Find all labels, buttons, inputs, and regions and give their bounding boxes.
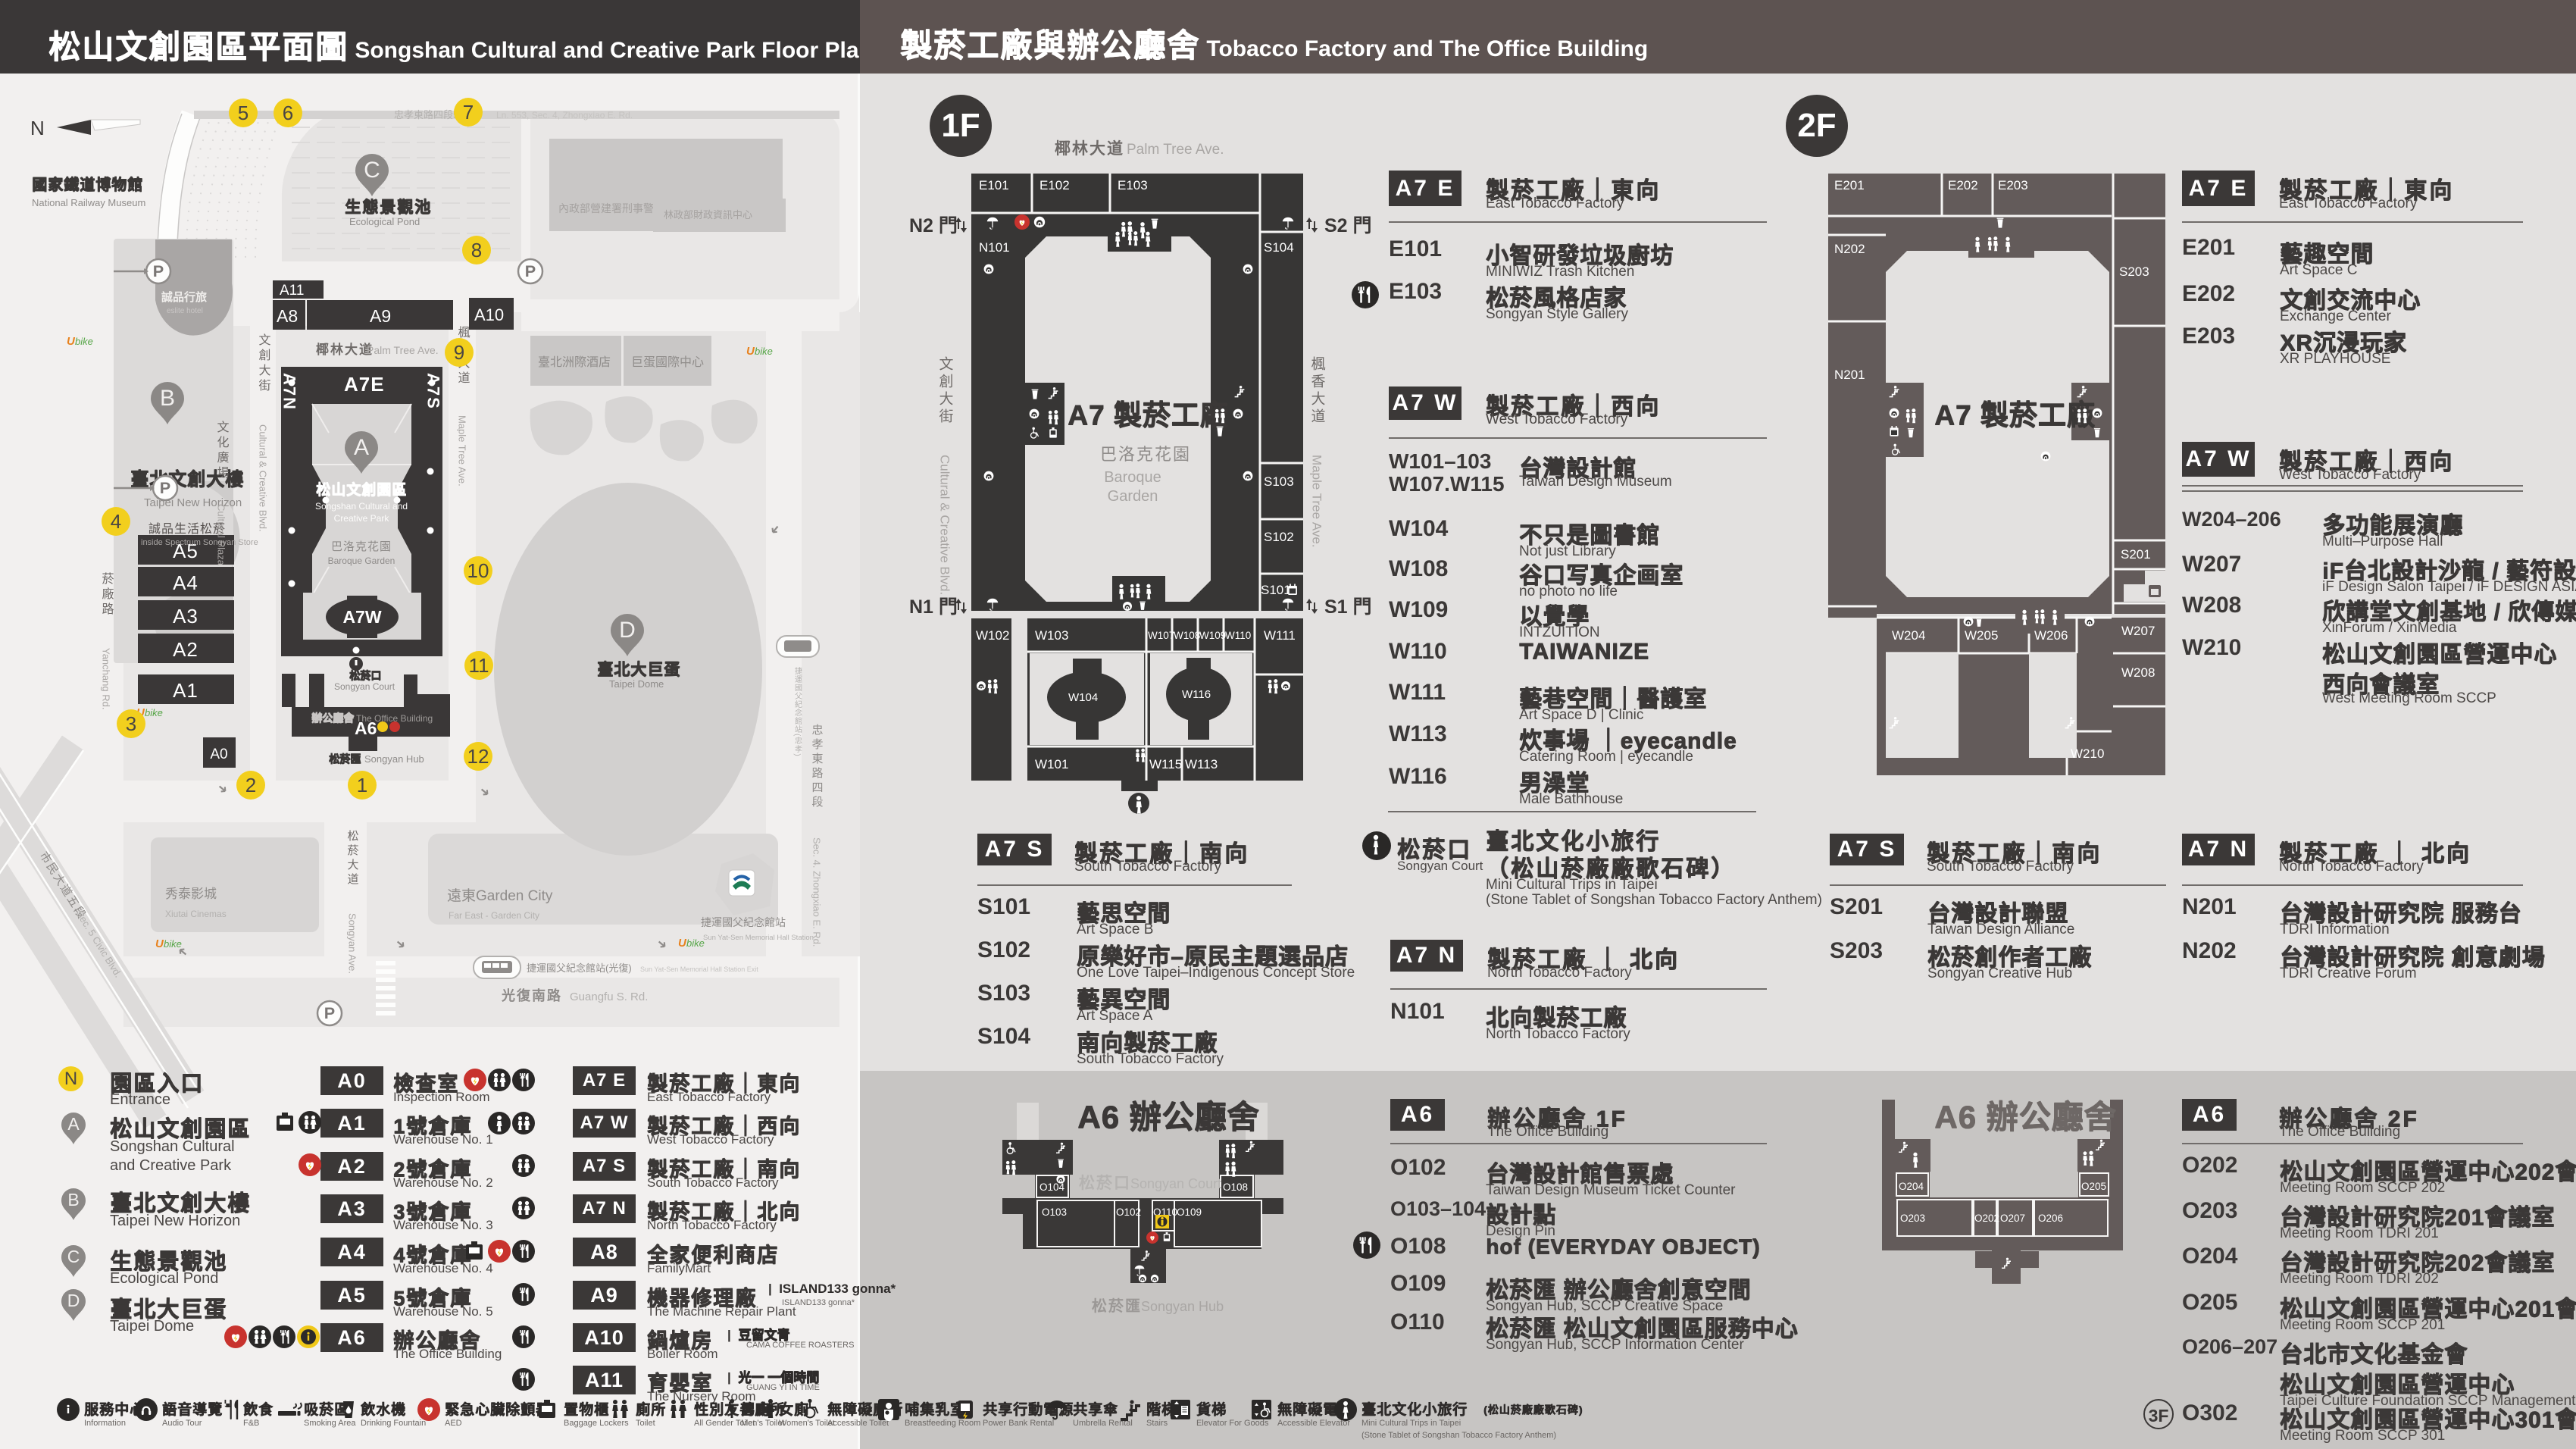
svg-text:W207: W207	[2121, 624, 2155, 638]
svg-text:誠品生活松菸: 誠品生活松菸	[148, 522, 226, 536]
svg-text:巴洛克花園: 巴洛克花園	[331, 540, 392, 553]
svg-text:W104: W104	[1068, 691, 1098, 704]
svg-text:光復南路: 光復南路	[501, 987, 562, 1003]
svg-text:E201: E201	[1834, 178, 1865, 192]
svg-text:Guangfu S. Rd.: Guangfu S. Rd.	[570, 991, 648, 1003]
svg-text:bike: bike	[145, 707, 163, 718]
svg-text:A2: A2	[173, 638, 199, 661]
svg-text:A8: A8	[277, 306, 298, 326]
svg-text:eslite hotel: eslite hotel	[167, 307, 203, 315]
svg-text:文創大街: 文創大街	[937, 356, 954, 426]
svg-text:Taipei Dome: Taipei Dome	[609, 678, 664, 690]
svg-text:bike: bike	[164, 938, 182, 950]
svg-text:W109: W109	[1199, 630, 1226, 641]
svg-text:捷運國父紀念館站: 捷運國父紀念館站	[701, 916, 786, 928]
svg-text:W208: W208	[2121, 665, 2155, 680]
svg-text:A1: A1	[173, 679, 199, 702]
svg-text:松菸大道: 松菸大道	[346, 830, 359, 887]
svg-text:Cultural & Creative Blvd.: Cultural & Creative Blvd.	[938, 455, 952, 595]
svg-text:Songshan Cultural and: Songshan Cultural and	[315, 501, 408, 512]
svg-text:Ecological Pond: Ecological Pond	[349, 216, 420, 227]
svg-text:S104: S104	[1264, 240, 1294, 255]
svg-text:S102: S102	[1264, 530, 1294, 544]
svg-text:N202: N202	[1834, 242, 1865, 256]
svg-text:O102: O102	[1116, 1206, 1141, 1218]
svg-text:P: P	[153, 261, 164, 280]
svg-text:P: P	[324, 1003, 335, 1022]
svg-text:O109: O109	[1177, 1206, 1202, 1218]
svg-text:捷運國父紀念館站(忠孝): 捷運國父紀念館站(忠孝)	[793, 666, 802, 757]
svg-text:Songyan Court: Songyan Court	[334, 681, 395, 692]
svg-text:辦公廳舍: 辦公廳舍	[311, 712, 355, 724]
svg-text:捷運國父紀念館站(光復): 捷運國父紀念館站(光復)	[527, 962, 632, 974]
svg-text:O205: O205	[2081, 1181, 2106, 1192]
svg-text:W210: W210	[2071, 746, 2104, 761]
svg-text:生態景觀池: 生態景觀池	[345, 198, 432, 216]
svg-text:Songyan Hub: Songyan Hub	[364, 753, 424, 765]
svg-text:B: B	[160, 386, 175, 411]
svg-text:O202: O202	[1974, 1213, 1999, 1224]
svg-text:忠孝東路四段: 忠孝東路四段	[811, 724, 824, 810]
svg-text:10: 10	[467, 559, 489, 582]
svg-text:A7S: A7S	[424, 373, 443, 410]
svg-text:Garden: Garden	[1108, 488, 1158, 505]
svg-text:O207: O207	[2000, 1213, 2025, 1224]
svg-text:O203: O203	[1900, 1213, 1925, 1224]
svg-text:國家鐵道博物館: 國家鐵道博物館	[32, 175, 143, 193]
svg-text:Far East - Garden City: Far East - Garden City	[449, 910, 539, 921]
svg-text:National Railway Museum: National Railway Museum	[32, 197, 145, 208]
svg-text:A7N: A7N	[280, 373, 299, 411]
svg-text:N: N	[30, 117, 45, 139]
svg-text:D: D	[619, 618, 636, 643]
svg-text:P: P	[160, 478, 170, 497]
svg-text:11: 11	[469, 654, 489, 677]
svg-text:椰林大道: 椰林大道	[1055, 139, 1124, 158]
svg-text:巨蛋國際中心: 巨蛋國際中心	[631, 355, 704, 369]
svg-text:松菸口: 松菸口	[1079, 1174, 1131, 1192]
svg-text:A10: A10	[474, 305, 504, 324]
svg-text:E202: E202	[1948, 178, 1978, 192]
svg-text:文創大街: 文創大街	[257, 333, 271, 394]
svg-text:巴洛克花園: 巴洛克花園	[1100, 445, 1191, 464]
svg-text:5: 5	[238, 102, 249, 124]
svg-text:W108: W108	[1174, 630, 1200, 641]
svg-text:W111: W111	[1264, 628, 1296, 643]
svg-text:A7 製菸工廠: A7 製菸工廠	[1068, 399, 1229, 430]
svg-text:D: D	[67, 1291, 80, 1310]
svg-text:B: B	[67, 1190, 79, 1210]
svg-text:A: A	[67, 1114, 80, 1134]
svg-text:A3: A3	[173, 605, 199, 627]
svg-text:8: 8	[471, 239, 482, 261]
svg-text:3: 3	[126, 712, 136, 735]
svg-text:W103: W103	[1035, 628, 1068, 643]
svg-text:2: 2	[245, 774, 256, 796]
svg-text:Maple Tree Ave.: Maple Tree Ave.	[457, 415, 468, 487]
svg-text:N201: N201	[1834, 368, 1865, 382]
svg-text:O204: O204	[1899, 1181, 1924, 1192]
svg-text:Sun Yat-Sen Memorial Hall Stat: Sun Yat-Sen Memorial Hall Station Exit	[640, 965, 758, 973]
svg-text:Songyan Court: Songyan Court	[1130, 1176, 1221, 1191]
svg-text:W116: W116	[1182, 688, 1211, 701]
svg-text:松菸匯: 松菸匯	[329, 753, 361, 765]
svg-text:Palm Tree Ave.: Palm Tree Ave.	[367, 344, 439, 356]
svg-text:A6 辦公廳舍: A6 辦公廳舍	[1077, 1099, 1259, 1134]
svg-text:A9: A9	[370, 306, 391, 326]
svg-text:臺北大巨蛋: 臺北大巨蛋	[597, 661, 680, 678]
svg-text:W204: W204	[1892, 628, 1925, 643]
svg-text:4: 4	[111, 510, 121, 533]
svg-text:A4: A4	[173, 571, 199, 594]
svg-text:S203: S203	[2119, 264, 2149, 279]
svg-text:楓香大道: 楓香大道	[1309, 356, 1326, 426]
svg-text:臺北洲際酒店: 臺北洲際酒店	[538, 355, 611, 369]
svg-text:E103: E103	[1118, 178, 1148, 192]
svg-text:S201: S201	[2121, 547, 2151, 562]
svg-text:E101: E101	[979, 178, 1009, 192]
svg-text:6: 6	[283, 102, 293, 124]
svg-text:Palm Tree Ave.: Palm Tree Ave.	[1127, 142, 1224, 158]
svg-text:inside Spectrum Songyan Store: inside Spectrum Songyan Store	[141, 538, 258, 547]
svg-text:A11: A11	[280, 283, 304, 299]
svg-text:W102: W102	[976, 628, 1009, 643]
svg-text:Creative Park: Creative Park	[334, 513, 390, 524]
svg-text:Ln. 553, Sec. 4, Zhongxiao E.: Ln. 553, Sec. 4, Zhongxiao E. Rd.	[496, 110, 633, 120]
svg-text:P: P	[525, 261, 536, 280]
svg-text:Sun Yat-Sen Memorial Hall Stat: Sun Yat-Sen Memorial Hall Station	[703, 934, 814, 942]
svg-text:S103: S103	[1264, 474, 1294, 489]
svg-text:林政部財政資訊中心: 林政部財政資訊中心	[664, 209, 752, 221]
svg-text:Baroque: Baroque	[1104, 469, 1161, 486]
svg-text:N2 門: N2 門	[909, 215, 958, 236]
svg-text:W101: W101	[1035, 757, 1068, 771]
svg-text:bike: bike	[755, 346, 773, 357]
svg-text:椰林大道: 椰林大道	[316, 342, 374, 357]
svg-text:S2 門: S2 門	[1324, 215, 1372, 236]
svg-text:W113: W113	[1185, 757, 1218, 771]
svg-text:S101: S101	[1261, 583, 1291, 597]
svg-text:菸廠路: 菸廠路	[100, 572, 114, 618]
svg-text:A7W: A7W	[342, 607, 381, 627]
svg-text:W115: W115	[1149, 757, 1182, 771]
svg-text:O206: O206	[2038, 1213, 2063, 1224]
svg-text:Xiutai Cinemas: Xiutai Cinemas	[165, 909, 227, 919]
svg-text:1: 1	[357, 774, 367, 796]
svg-text:W206: W206	[2034, 628, 2068, 643]
svg-text:Cultural & Creative Blvd.: Cultural & Creative Blvd.	[258, 424, 269, 532]
svg-text:A: A	[354, 435, 369, 460]
svg-text:bike: bike	[686, 937, 705, 949]
svg-text:W205: W205	[1965, 628, 1998, 643]
svg-text:Yanchang Rd.: Yanchang Rd.	[101, 648, 112, 709]
svg-text:S1 門: S1 門	[1324, 596, 1372, 618]
svg-text:C: C	[67, 1247, 80, 1266]
svg-text:A6: A6	[355, 718, 377, 738]
svg-text:松菸匯: 松菸匯	[1092, 1297, 1142, 1315]
svg-text:bike: bike	[75, 336, 93, 347]
svg-text:12: 12	[467, 745, 489, 768]
svg-text:E102: E102	[1039, 178, 1070, 192]
svg-text:W110: W110	[1225, 630, 1251, 641]
svg-text:Songyan Ave.: Songyan Ave.	[347, 913, 358, 974]
svg-text:誠品行旅: 誠品行旅	[161, 290, 207, 304]
svg-text:A7E: A7E	[344, 373, 385, 396]
svg-text:Sec. 4. Zhongxiao E. Rd.: Sec. 4. Zhongxiao E. Rd.	[811, 837, 823, 947]
svg-text:N1 門: N1 門	[909, 596, 958, 618]
svg-text:9: 9	[454, 341, 464, 364]
svg-text:N101: N101	[979, 240, 1010, 255]
svg-text:秀泰影城: 秀泰影城	[165, 887, 217, 901]
svg-text:松山文創園區: 松山文創園區	[316, 480, 407, 498]
svg-text:Maple Tree Ave.: Maple Tree Ave.	[1310, 455, 1324, 548]
svg-text:A7 製菸工廠: A7 製菸工廠	[1934, 399, 2096, 430]
svg-text:文化廣場: 文化廣場	[215, 421, 230, 481]
svg-text:E203: E203	[1998, 178, 2028, 192]
svg-text:O103: O103	[1042, 1206, 1067, 1218]
svg-text:7: 7	[463, 101, 474, 124]
svg-text:A6 辦公廳舍: A6 辦公廳舍	[1934, 1099, 2116, 1134]
svg-text:Songyan Hub: Songyan Hub	[1141, 1299, 1224, 1314]
svg-text:W107: W107	[1148, 630, 1174, 641]
svg-text:遠東Garden City: 遠東Garden City	[447, 887, 553, 904]
svg-text:C: C	[364, 158, 380, 183]
svg-text:Baroque Garden: Baroque Garden	[328, 556, 395, 566]
svg-text:松菸口: 松菸口	[349, 669, 381, 681]
svg-text:O108: O108	[1223, 1181, 1248, 1193]
svg-text:Cultural Plaza: Cultural Plaza	[216, 504, 227, 566]
svg-text:A0: A0	[210, 746, 227, 762]
